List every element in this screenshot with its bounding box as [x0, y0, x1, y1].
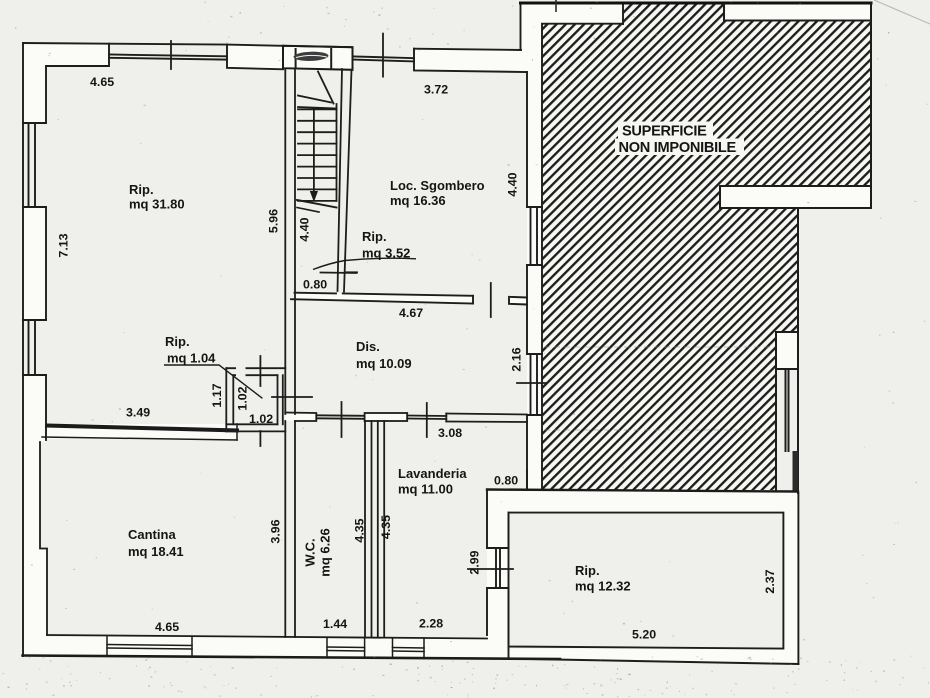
svg-text:4.35: 4.35 [353, 518, 367, 542]
svg-text:Cantina: Cantina [128, 527, 176, 542]
svg-text:3.72: 3.72 [424, 83, 448, 97]
svg-text:1.17: 1.17 [210, 383, 224, 407]
svg-text:mq 1.04: mq 1.04 [167, 351, 216, 366]
svg-text:2.28: 2.28 [419, 617, 443, 631]
svg-text:4.40: 4.40 [298, 217, 312, 241]
svg-text:Loc. Sgombero: Loc. Sgombero [390, 178, 485, 193]
svg-text:mq 6.26: mq 6.26 [318, 528, 333, 576]
svg-text:mq 11.00: mq 11.00 [398, 482, 453, 497]
svg-text:mq 16.36: mq 16.36 [390, 193, 446, 208]
svg-text:4.67: 4.67 [399, 306, 423, 320]
svg-text:2.37: 2.37 [763, 569, 777, 593]
svg-text:Dis.: Dis. [356, 339, 380, 354]
svg-text:mq 3.52: mq 3.52 [362, 246, 410, 261]
svg-text:3.08: 3.08 [438, 426, 462, 440]
svg-text:1.02: 1.02 [236, 386, 250, 410]
svg-text:5.20: 5.20 [632, 628, 656, 642]
svg-text:1.44: 1.44 [323, 617, 347, 631]
svg-text:Rip.: Rip. [129, 182, 154, 197]
svg-text:SUPERFICIE: SUPERFICIE [622, 124, 707, 140]
svg-text:1.02: 1.02 [249, 412, 273, 426]
svg-text:4.65: 4.65 [90, 75, 114, 89]
svg-text:Rip.: Rip. [362, 229, 387, 244]
svg-text:mq 18.41: mq 18.41 [128, 544, 184, 559]
svg-text:2.16: 2.16 [510, 347, 524, 371]
svg-text:3.96: 3.96 [269, 519, 283, 543]
svg-text:5.96: 5.96 [267, 209, 281, 233]
svg-text:mq 31.80: mq 31.80 [129, 197, 185, 212]
svg-text:3.49: 3.49 [126, 406, 150, 420]
svg-text:0.80: 0.80 [303, 278, 327, 292]
svg-text:W.C.: W.C. [303, 538, 318, 566]
svg-text:Rip.: Rip. [165, 334, 190, 349]
svg-text:0.80: 0.80 [494, 474, 518, 488]
svg-text:4.65: 4.65 [155, 620, 179, 634]
svg-text:Rip.: Rip. [575, 563, 600, 578]
svg-text:mq 10.09: mq 10.09 [356, 356, 412, 371]
svg-text:2.99: 2.99 [468, 550, 482, 574]
svg-text:NON IMPONIBILE: NON IMPONIBILE [619, 140, 737, 156]
svg-text:Lavanderia: Lavanderia [398, 466, 467, 481]
svg-text:4.40: 4.40 [506, 172, 520, 196]
svg-text:7.13: 7.13 [57, 233, 71, 257]
svg-text:4.35: 4.35 [379, 515, 393, 539]
svg-text:mq 12.32: mq 12.32 [575, 579, 631, 594]
